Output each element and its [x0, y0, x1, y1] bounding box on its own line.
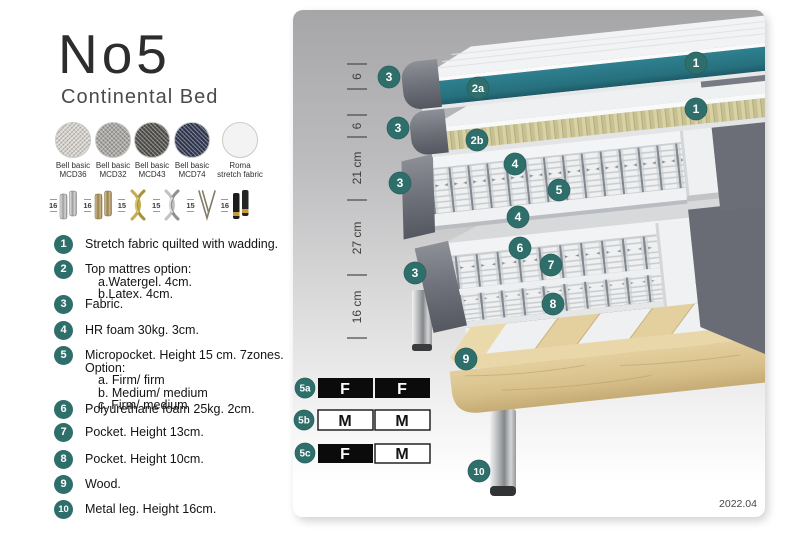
svg-text:4: 4 — [512, 157, 519, 171]
legend-item: 8 Pocket. Height 10cm. — [54, 450, 204, 469]
svg-text:1: 1 — [693, 102, 700, 116]
legend-subline: a. Firm/ firm — [98, 374, 304, 387]
firmness-row-5a: 5a F F — [295, 378, 430, 398]
measurement-label: 16 cm — [350, 291, 364, 324]
legend-item: 10 Metal leg. Height 16cm. — [54, 500, 216, 519]
version-label: 2022.04 — [719, 498, 757, 510]
legend-text: Stretch fabric quilted with wadding. — [85, 238, 278, 251]
legend-item: 7 Pocket. Height 13cm. — [54, 423, 204, 442]
legend-text: Micropocket. Height 15 cm. 7zones. Optio… — [85, 349, 304, 374]
firmness-cell: F — [397, 381, 407, 398]
badge-pocket-13: 7 — [540, 254, 562, 276]
legend-item: 6 Polyurethane foam 25kg. 2cm. — [54, 400, 255, 419]
legend-number-badge: 5 — [54, 346, 73, 365]
legend-item: 9 Wood. — [54, 475, 121, 494]
badge-wood: 9 — [455, 348, 477, 370]
svg-text:2b: 2b — [471, 135, 484, 147]
diagram-panel: 6 6 21 cm 27 cm 16 cm — [293, 10, 765, 517]
legend-number-badge: 1 — [54, 235, 73, 254]
legend-text: Metal leg. Height 16cm. — [85, 503, 216, 516]
firmness-table: 5a F F 5b M M 5c F M — [294, 378, 430, 463]
svg-text:5: 5 — [556, 183, 563, 197]
legend-number-badge: 9 — [54, 475, 73, 494]
badge-metal-leg: 10 — [468, 460, 490, 482]
badge-fabric: 3 — [404, 262, 426, 284]
badge-fabric: 3 — [387, 117, 409, 139]
svg-text:10: 10 — [473, 467, 485, 478]
page: No5 Continental Bed Bell basicMCD36 Bell… — [0, 0, 800, 533]
badge-top-mattress-watergel: 2a — [467, 77, 489, 99]
firmness-row-id: 5a — [299, 384, 311, 395]
svg-text:7: 7 — [548, 258, 555, 272]
svg-text:3: 3 — [395, 121, 402, 135]
legend-list: 1 Stretch fabric quilted with wadding. 2… — [54, 0, 304, 533]
svg-text:8: 8 — [550, 297, 557, 311]
svg-text:3: 3 — [386, 70, 393, 84]
legend-number-badge: 10 — [54, 500, 73, 519]
firmness-row-5b: 5b M M — [294, 410, 430, 430]
badge-stretch-fabric: 1 — [685, 98, 707, 120]
firmness-row-5c: 5c F M — [295, 443, 430, 463]
legend-number-badge: 6 — [54, 400, 73, 419]
measurement-label: 27 cm — [350, 222, 364, 255]
legend-number-badge: 7 — [54, 423, 73, 442]
legend-item: 1 Stretch fabric quilted with wadding. — [54, 235, 278, 254]
svg-text:3: 3 — [397, 176, 404, 190]
legend-text: Fabric. — [85, 298, 123, 311]
badge-top-mattress-latex: 2b — [466, 129, 488, 151]
measurement-label: 6 — [350, 122, 364, 129]
badge-fabric: 3 — [378, 66, 400, 88]
legend-item: 4 HR foam 30kg. 3cm. — [54, 321, 199, 340]
legend-text: Top mattres option: — [85, 263, 192, 276]
firmness-cell: M — [395, 413, 408, 430]
measurement-label: 21 cm — [350, 152, 364, 185]
legend-number-badge: 2 — [54, 260, 73, 279]
svg-text:4: 4 — [515, 210, 522, 224]
badge-micropocket: 5 — [548, 179, 570, 201]
badge-hr-foam: 4 — [504, 153, 526, 175]
legend-text: Pocket. Height 10cm. — [85, 453, 204, 466]
legend-item: 3 Fabric. — [54, 295, 123, 314]
legend-text: Pocket. Height 13cm. — [85, 426, 204, 439]
firmness-cell: M — [395, 446, 408, 463]
measurement-label: 6 — [350, 73, 364, 80]
firmness-cell: M — [338, 413, 351, 430]
svg-text:2a: 2a — [472, 83, 485, 95]
legend-text: HR foam 30kg. 3cm. — [85, 324, 199, 337]
svg-text:1: 1 — [693, 56, 700, 70]
badge-hr-foam: 4 — [507, 206, 529, 228]
badge-polyurethane-foam: 6 — [509, 237, 531, 259]
svg-text:6: 6 — [517, 241, 524, 255]
legend-number-badge: 4 — [54, 321, 73, 340]
svg-text:3: 3 — [412, 266, 419, 280]
badge-fabric: 3 — [389, 172, 411, 194]
badge-pocket-10: 8 — [542, 293, 564, 315]
legend-text: Polyurethane foam 25kg. 2cm. — [85, 403, 255, 416]
legend-number-badge: 3 — [54, 295, 73, 314]
bed-diagram: 6 6 21 cm 27 cm 16 cm — [293, 10, 765, 517]
badge-stretch-fabric: 1 — [685, 52, 707, 74]
legend-number-badge: 8 — [54, 450, 73, 469]
metal-leg-front — [490, 409, 516, 496]
svg-text:9: 9 — [463, 352, 470, 366]
firmness-row-id: 5c — [299, 449, 311, 460]
firmness-row-id: 5b — [298, 416, 310, 427]
firmness-cell: F — [340, 381, 350, 398]
firmness-cell: F — [340, 446, 350, 463]
measurement-labels: 6 6 21 cm 27 cm 16 cm — [350, 73, 364, 324]
legend-text: Wood. — [85, 478, 121, 491]
